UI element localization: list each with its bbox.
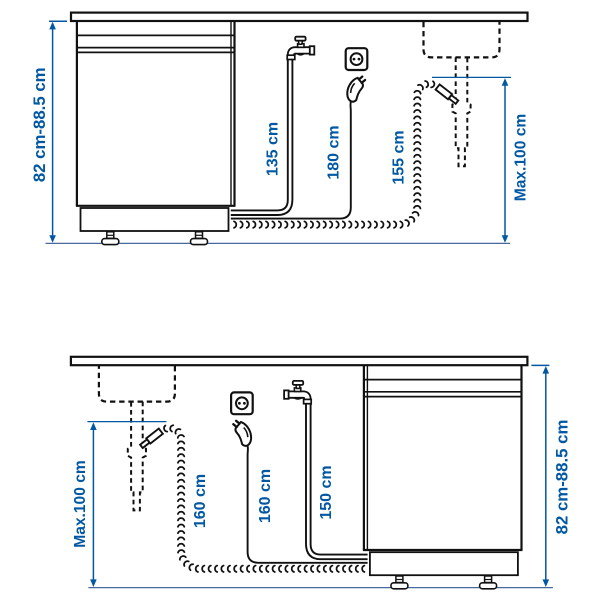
svg-text:150 cm: 150 cm bbox=[318, 465, 335, 519]
svg-text:Max.100 cm: Max.100 cm bbox=[72, 460, 89, 548]
svg-text:135 cm: 135 cm bbox=[265, 122, 282, 176]
svg-text:Max.100 cm: Max.100 cm bbox=[513, 114, 530, 202]
svg-text:82 cm-88.5 cm: 82 cm-88.5 cm bbox=[553, 420, 572, 535]
svg-text:180 cm: 180 cm bbox=[326, 125, 343, 179]
svg-text:155 cm: 155 cm bbox=[391, 130, 408, 184]
svg-text:82 cm-88.5 cm: 82 cm-88.5 cm bbox=[30, 67, 49, 182]
svg-text:160 cm: 160 cm bbox=[257, 469, 274, 523]
svg-text:160 cm: 160 cm bbox=[192, 474, 209, 528]
